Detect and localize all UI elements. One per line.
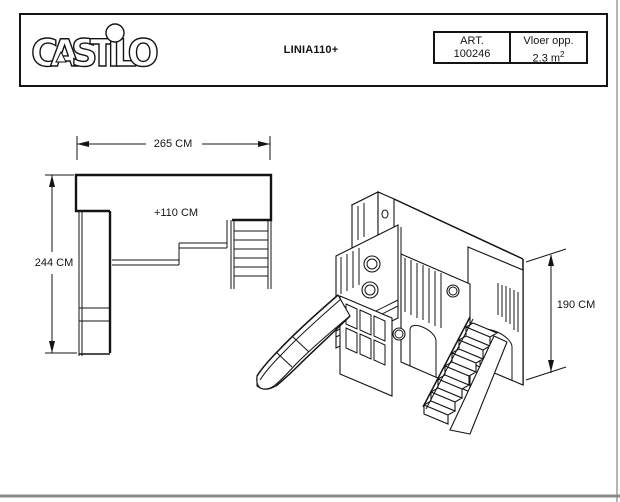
plan-ladder [231, 220, 271, 289]
plan-platform [76, 175, 271, 353]
iso-view [257, 192, 566, 434]
technical-drawing [0, 0, 620, 502]
dim-iso-height-label: 190 CM [555, 299, 598, 311]
plan-view [45, 136, 271, 356]
iso-dim-height [526, 249, 566, 380]
dim-depth-label: 244 CM [33, 257, 76, 269]
sheet-frame [0, 0, 620, 502]
drawing-sheet: CASTILO LINIA110+ ART. 100246 Vloer opp.… [0, 0, 620, 502]
dim-width-label: 265 CM [152, 138, 195, 150]
dim-platform-height-label: +110 CM [152, 207, 200, 219]
plan-slide-column [79, 211, 110, 356]
plan-bridge [112, 220, 227, 265]
